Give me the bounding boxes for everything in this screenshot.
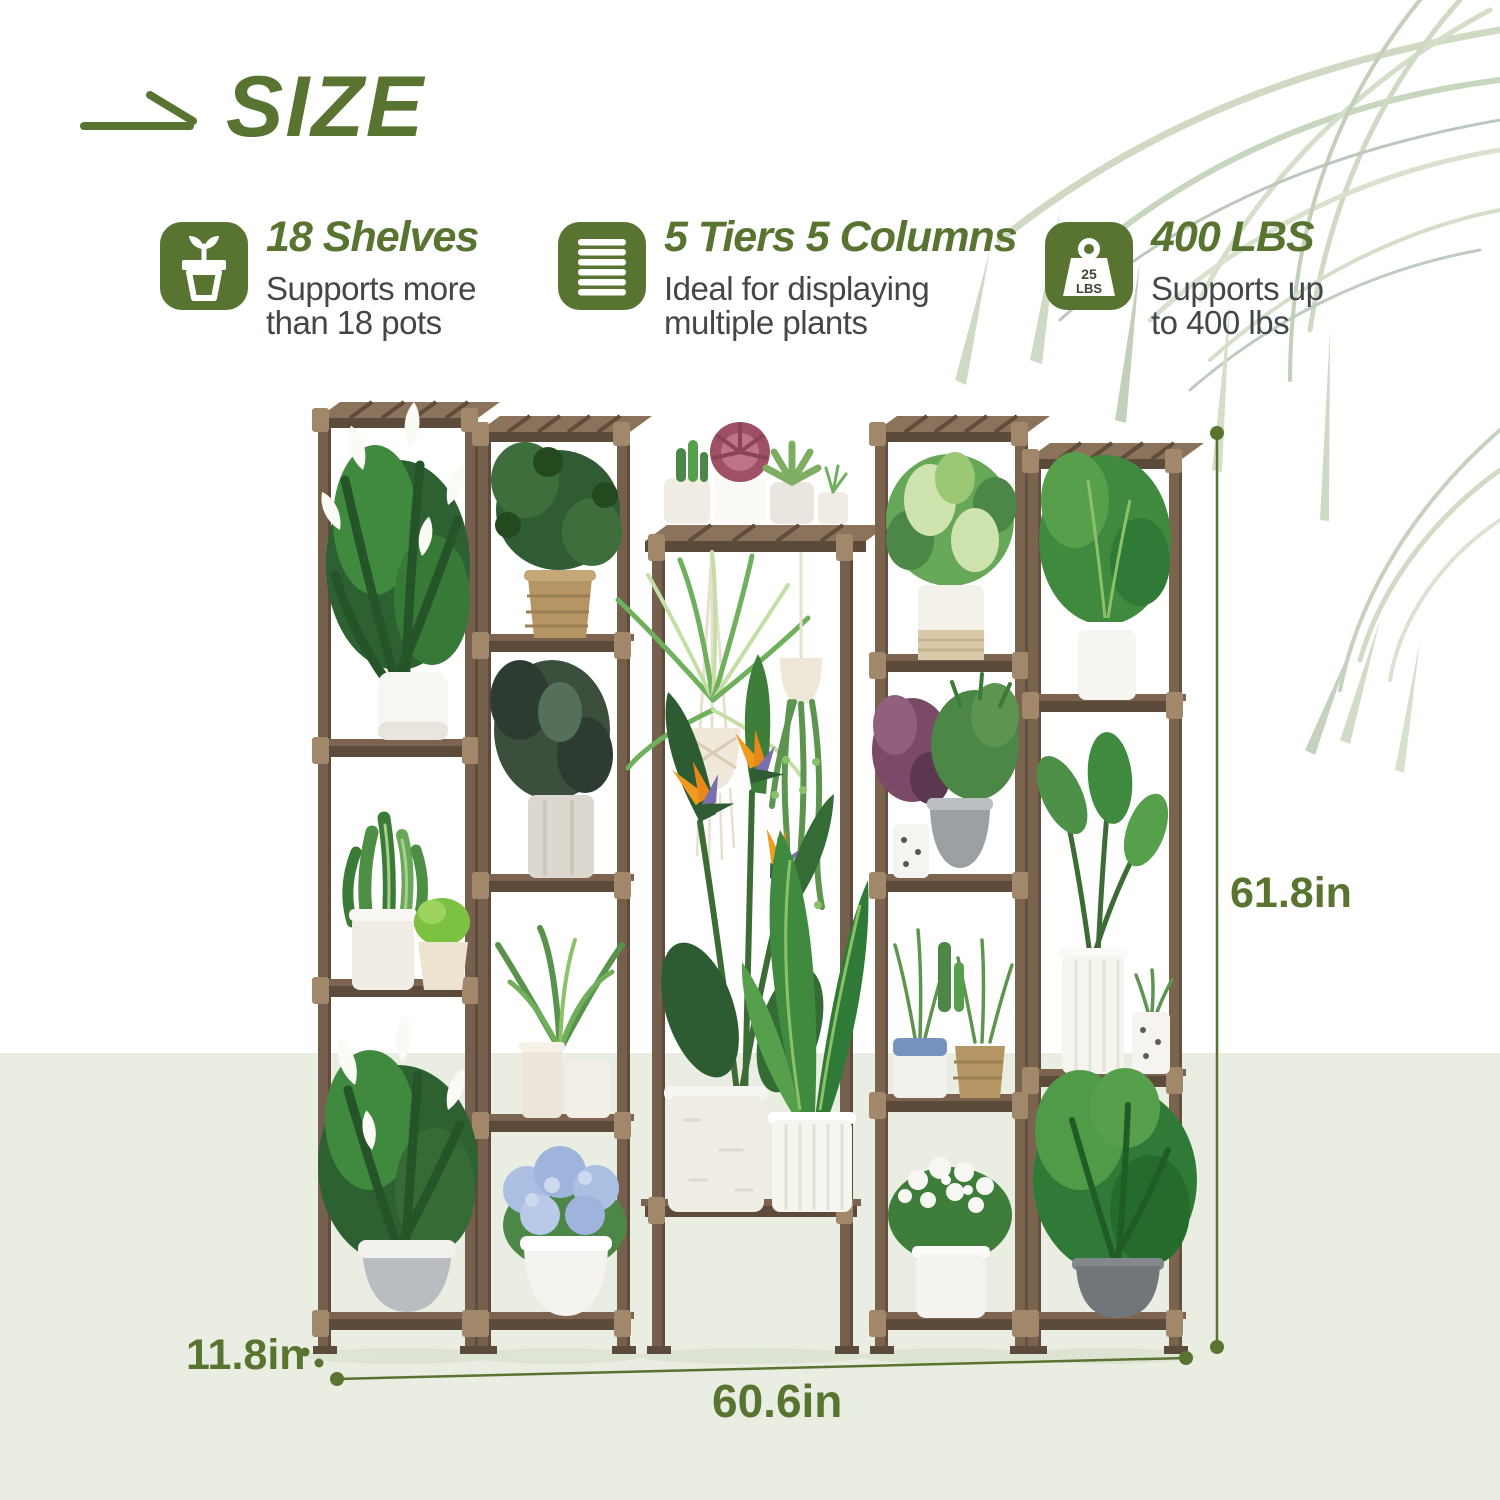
feature-tiers-title: 5 Tiers 5 Columns xyxy=(664,216,1017,259)
rubber-plant xyxy=(490,660,613,878)
depth-dimension-label: 11.8in xyxy=(186,1334,306,1377)
svg-text:25: 25 xyxy=(1081,266,1097,282)
height-dimension-label: 61.8in xyxy=(1230,872,1352,915)
size-arrow-icon xyxy=(0,0,230,170)
feature-weight-title: 400 LBS xyxy=(1151,216,1323,259)
dieffenbachia xyxy=(886,452,1017,660)
peace-lily-top-left xyxy=(316,402,470,740)
calathea-and-bush xyxy=(872,674,1019,878)
plant-pot-icon xyxy=(160,222,248,310)
page-title: SIZE xyxy=(226,64,425,150)
svg-text:LBS: LBS xyxy=(1076,281,1102,296)
feature-weight-description: Supports up to 400 lbs xyxy=(1151,272,1323,340)
feature-tiers-description: Ideal for displaying multiple plants xyxy=(664,272,1017,340)
strelitzia-tall-pot xyxy=(1026,730,1177,1074)
width-dimension-label: 60.6in xyxy=(712,1378,842,1424)
hanging-spider-plant xyxy=(618,552,808,866)
plant-stand-size-infographic: SIZE 18 Shelves Supports more than 18 po… xyxy=(0,0,1500,1500)
feature-weight: 25 LBS 400 LBS Supports up to 400 lbs xyxy=(1045,222,1475,362)
tropical-plant-top-right xyxy=(1039,452,1171,700)
feature-shelves-title: 18 Shelves xyxy=(266,216,478,259)
feature-shelves: 18 Shelves Supports more than 18 pots xyxy=(160,222,590,362)
shelf-tiers-icon xyxy=(558,222,646,310)
feature-shelves-description: Supports more than 18 pots xyxy=(266,272,478,340)
palm-fronds-side-decoration xyxy=(1305,430,1500,773)
feature-tiers: 5 Tiers 5 Columns Ideal for displaying m… xyxy=(558,222,988,362)
fig-plant-basket xyxy=(491,442,622,638)
succulent-pots-on-bridge xyxy=(664,422,848,524)
snake-plant-and-grass xyxy=(348,818,470,990)
weight-icon: 25 LBS xyxy=(1045,222,1133,310)
